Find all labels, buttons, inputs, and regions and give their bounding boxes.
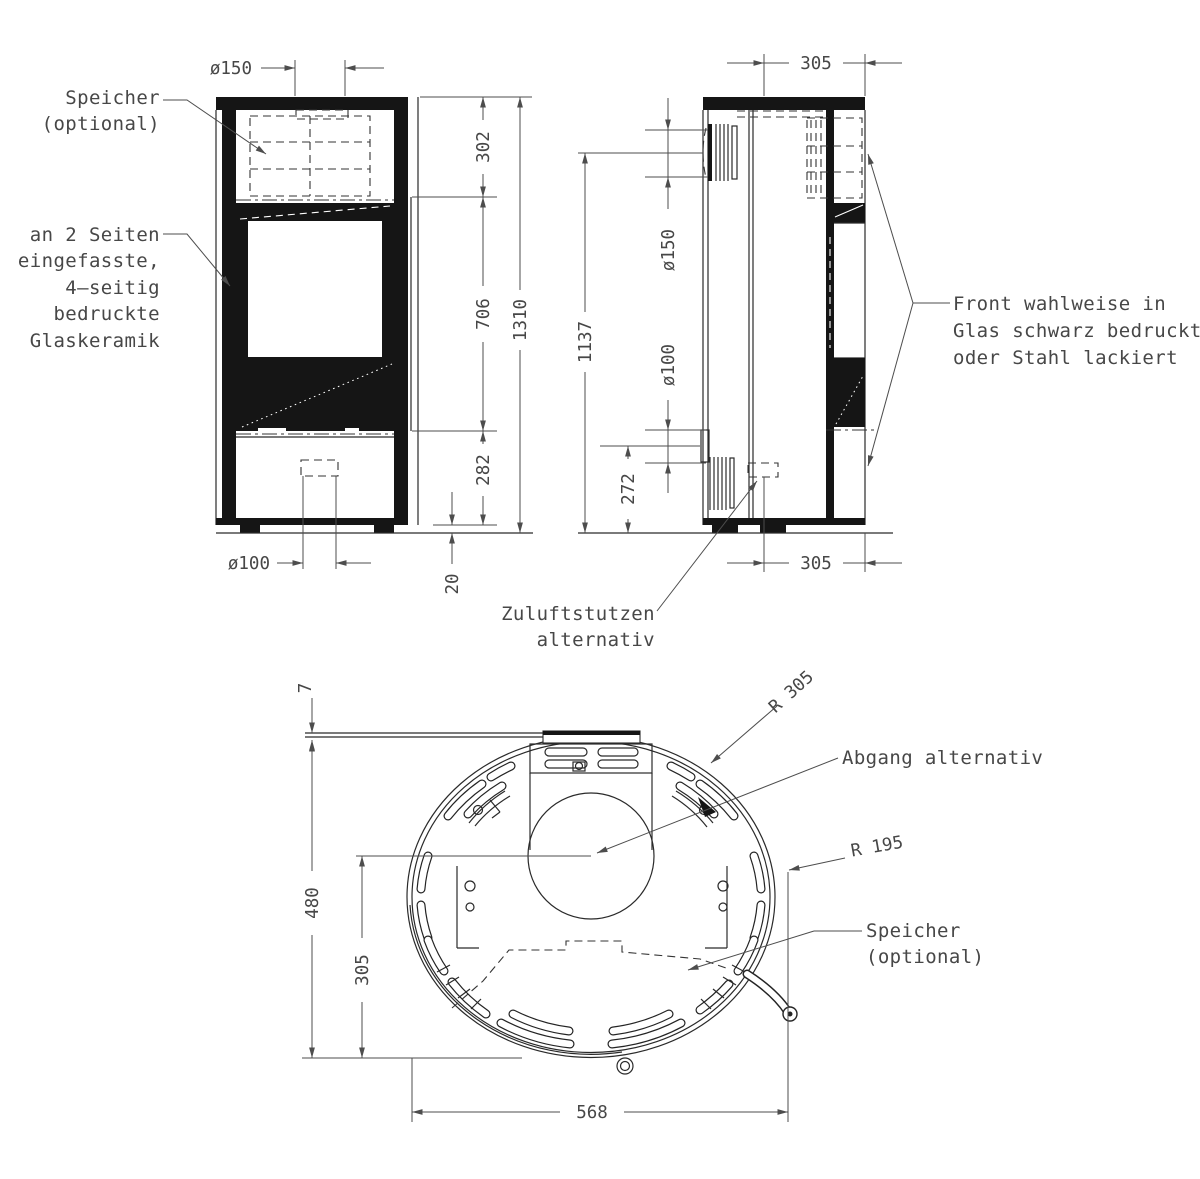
label-glass-5: Glaskeramik bbox=[30, 330, 160, 352]
door-handle bbox=[747, 974, 797, 1021]
zuluft-leader bbox=[657, 481, 757, 611]
glass-window bbox=[248, 221, 382, 357]
dimension-282: 282 bbox=[474, 431, 494, 525]
dimension-302: 302 bbox=[474, 97, 494, 197]
flue-outlet-rear bbox=[703, 124, 737, 181]
side-view bbox=[578, 97, 893, 533]
speicher-dashed-side bbox=[807, 118, 862, 198]
drawing-canvas: ø150 302 706 282 1310 20 ø100 Speicher (… bbox=[0, 0, 1200, 1179]
dimension-flue-side: ø150 bbox=[645, 98, 708, 271]
dimension-wall-gap: 7 bbox=[296, 683, 316, 775]
dim-depth-top: 305 bbox=[800, 54, 832, 74]
plan-view-annotations: Abgang alternativ Speicher (optional) bbox=[597, 747, 1043, 970]
front-foot-plan bbox=[617, 1058, 633, 1074]
label-glass-2: eingefasste, bbox=[18, 250, 160, 272]
foot-right bbox=[374, 525, 394, 533]
dim-20: 20 bbox=[443, 573, 463, 594]
dim-568: 568 bbox=[576, 1103, 608, 1123]
dim-flue-side: ø150 bbox=[659, 229, 679, 271]
dimension-depth-top: 305 bbox=[727, 54, 902, 96]
dim-305-plan: 305 bbox=[353, 954, 373, 986]
label-zuluft-2: alternativ bbox=[537, 629, 655, 651]
glass-leader bbox=[163, 234, 230, 286]
dimension-706: 706 bbox=[474, 197, 494, 431]
foot-left bbox=[240, 525, 260, 533]
inlet-outlet-rear bbox=[701, 430, 734, 510]
dim-706: 706 bbox=[474, 298, 494, 330]
dim-r195: R 195 bbox=[849, 833, 904, 862]
label-abgang: Abgang alternativ bbox=[842, 747, 1043, 769]
dimension-480: 480 bbox=[303, 740, 323, 1058]
label-speicher-2: (optional) bbox=[42, 113, 160, 135]
dimension-1310: 1310 bbox=[511, 97, 531, 533]
front-option-leader-top bbox=[868, 154, 913, 303]
dimension-1137: 1137 bbox=[576, 153, 703, 533]
label-front-option-3: oder Stahl lackiert bbox=[953, 347, 1178, 369]
floor-inlet-dashed bbox=[301, 460, 338, 476]
dimension-flue-top: ø150 bbox=[210, 59, 384, 96]
label-front-option-2: Glas schwarz bedruckt bbox=[953, 320, 1200, 342]
technical-drawing-stove: ø150 302 706 282 1310 20 ø100 Speicher (… bbox=[0, 0, 1200, 1179]
dim-inlet-bottom: ø100 bbox=[228, 554, 270, 574]
dim-inlet-side: ø100 bbox=[659, 344, 679, 386]
label-front-option-1: Front wahlweise in bbox=[953, 293, 1166, 315]
dim-302: 302 bbox=[474, 131, 494, 163]
side-view-dimensions: 305 ø150 ø100 1137 272 305 bbox=[576, 54, 902, 574]
dim-282: 282 bbox=[474, 454, 494, 486]
label-glass-1: an 2 Seiten bbox=[30, 224, 160, 246]
dim-flue-top: ø150 bbox=[210, 59, 252, 79]
dimension-272: 272 bbox=[600, 446, 700, 533]
label-speicher-1: Speicher bbox=[65, 87, 160, 109]
plan-view bbox=[305, 731, 797, 1074]
dim-1310: 1310 bbox=[511, 299, 531, 341]
speicher-plan-dashed bbox=[452, 941, 726, 1008]
front-option-leader-bottom bbox=[868, 303, 913, 466]
dim-1137: 1137 bbox=[576, 321, 596, 363]
label-zuluft-1: Zuluftstutzen bbox=[501, 603, 655, 625]
label-glass-4: bedruckte bbox=[53, 303, 160, 325]
abgang-leader bbox=[597, 758, 838, 853]
label-speicher-plan-1: Speicher bbox=[866, 920, 961, 942]
dim-272: 272 bbox=[619, 473, 639, 505]
dim-wall-gap: 7 bbox=[296, 683, 316, 694]
dimension-20: 20 bbox=[443, 492, 463, 595]
dimension-r305: R 305 bbox=[711, 667, 818, 763]
dimension-r195: R 195 bbox=[789, 833, 905, 870]
dim-depth-bottom: 305 bbox=[800, 554, 832, 574]
foot-side-left bbox=[712, 525, 738, 533]
hinge-hardware bbox=[437, 791, 745, 1009]
dim-480: 480 bbox=[303, 887, 323, 919]
stove-body-outline bbox=[407, 737, 775, 1058]
dimension-inlet-side: ø100 bbox=[645, 344, 706, 493]
label-glass-3: 4–seitig bbox=[65, 277, 160, 299]
label-speicher-plan-2: (optional) bbox=[866, 946, 984, 968]
